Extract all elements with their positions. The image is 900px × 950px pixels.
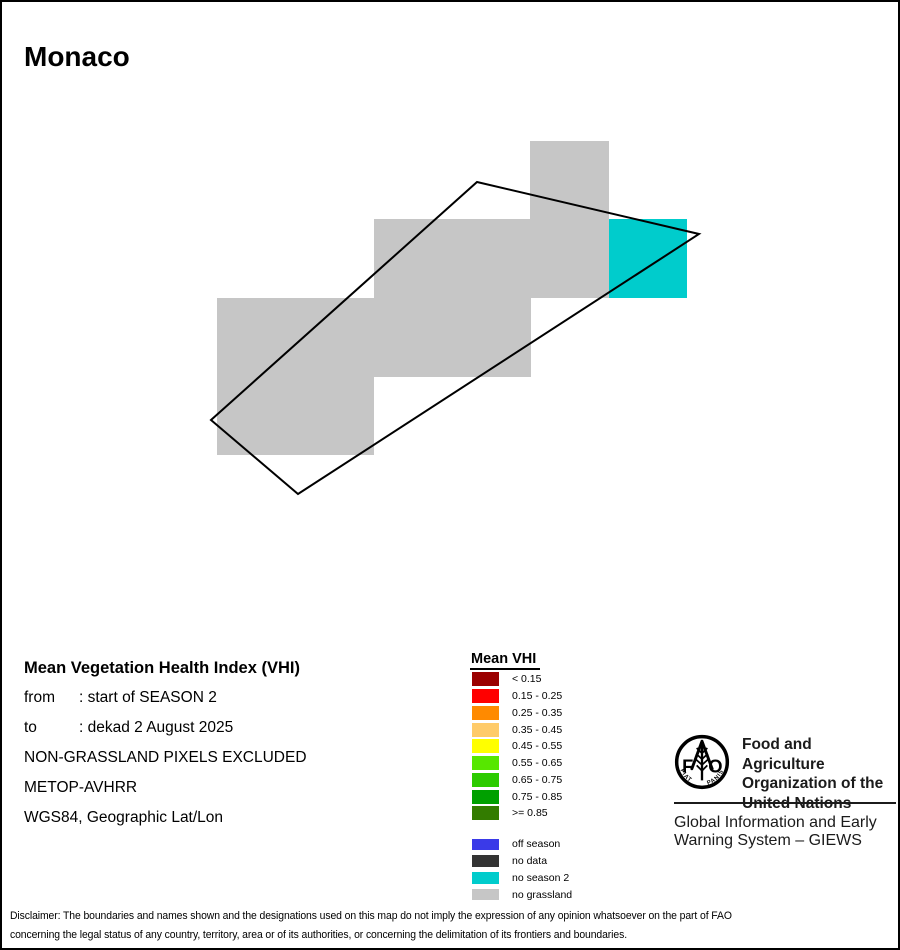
- info-from-value: : start of SEASON 2: [79, 689, 217, 706]
- map-info-block: Mean Vegetation Health Index (VHI) from:…: [24, 653, 454, 833]
- disclaimer: Disclaimer: The boundaries and names sho…: [10, 907, 732, 944]
- disclaimer-line2: concerning the legal status of any count…: [10, 926, 732, 945]
- info-title: Mean Vegetation Health Index (VHI): [24, 653, 454, 683]
- legend-label: no data: [512, 855, 547, 867]
- legend-label: 0.45 - 0.55: [512, 740, 562, 752]
- legend-swatch: [472, 706, 499, 720]
- giews-name-line2: Warning System – GIEWS: [674, 832, 877, 850]
- fao-logo-grain-drop: [700, 741, 704, 747]
- map-boundary-layer: [2, 2, 900, 562]
- legend-label: off season: [512, 838, 560, 850]
- legend-swatch: [472, 739, 499, 753]
- branding-divider: [674, 802, 896, 804]
- legend-status-rows: off seasonno datano season 2no grassland: [472, 836, 572, 903]
- disclaimer-line1: Disclaimer: The boundaries and names sho…: [10, 907, 732, 926]
- legend-label: 0.75 - 0.85: [512, 791, 562, 803]
- info-line-exclusion: NON-GRASSLAND PIXELS EXCLUDED: [24, 743, 454, 773]
- legend-label: 0.15 - 0.25: [512, 690, 562, 702]
- legend-swatch: [472, 806, 499, 820]
- legend-swatch: [472, 872, 499, 884]
- map-report-page: Monaco Mean Vegetation Health Index (VHI…: [0, 0, 900, 950]
- info-to-label: to: [24, 713, 79, 743]
- info-from-label: from: [24, 683, 79, 713]
- legend-swatch: [472, 723, 499, 737]
- legend-swatch: [472, 839, 499, 851]
- legend-swatch: [472, 672, 499, 686]
- legend-row: 0.75 - 0.85: [472, 788, 562, 805]
- map-area: [2, 2, 900, 562]
- legend-row: 0.65 - 0.75: [472, 772, 562, 789]
- legend-row: no season 2: [472, 870, 572, 887]
- legend-swatch: [472, 855, 499, 867]
- info-line-sensor: METOP-AVHRR: [24, 773, 454, 803]
- legend-swatch: [472, 790, 499, 804]
- info-line-projection: WGS84, Geographic Lat/Lon: [24, 803, 454, 833]
- legend-label: 0.65 - 0.75: [512, 774, 562, 786]
- legend-label: >= 0.85: [512, 807, 548, 819]
- fao-logo: F O FIAT PANIS: [673, 733, 731, 791]
- info-to-value: : dekad 2 August 2025: [79, 719, 233, 736]
- legend-row: no grassland: [472, 886, 572, 903]
- legend-row: no data: [472, 853, 572, 870]
- info-row-from: from: start of SEASON 2: [24, 683, 454, 713]
- info-row-to: to: dekad 2 August 2025: [24, 713, 454, 743]
- fao-org-name-line2: Organization of the: [742, 774, 898, 794]
- legend-swatch: [472, 889, 499, 901]
- legend-label: 0.35 - 0.45: [512, 724, 562, 736]
- legend-row: off season: [472, 836, 572, 853]
- giews-name: Global Information and Early Warning Sys…: [674, 814, 877, 849]
- legend-row: 0.35 - 0.45: [472, 721, 562, 738]
- fao-org-name-line1: Food and Agriculture: [742, 735, 898, 774]
- legend-row: 0.25 - 0.35: [472, 705, 562, 722]
- legend-row: >= 0.85: [472, 805, 562, 822]
- legend-row: 0.15 - 0.25: [472, 688, 562, 705]
- legend-row: 0.55 - 0.65: [472, 755, 562, 772]
- legend-label: no season 2: [512, 872, 569, 884]
- legend-label: < 0.15: [512, 673, 542, 685]
- legend-title: Mean VHI: [470, 651, 540, 670]
- legend-vhi-rows: < 0.150.15 - 0.250.25 - 0.350.35 - 0.450…: [472, 671, 562, 822]
- legend-swatch: [472, 773, 499, 787]
- legend-label: no grassland: [512, 889, 572, 901]
- legend-label: 0.55 - 0.65: [512, 757, 562, 769]
- giews-name-line1: Global Information and Early: [674, 814, 877, 832]
- legend-label: 0.25 - 0.35: [512, 707, 562, 719]
- legend-swatch: [472, 689, 499, 703]
- country-boundary: [211, 182, 699, 494]
- legend-row: < 0.15: [472, 671, 562, 688]
- legend-swatch: [472, 756, 499, 770]
- legend-row: 0.45 - 0.55: [472, 738, 562, 755]
